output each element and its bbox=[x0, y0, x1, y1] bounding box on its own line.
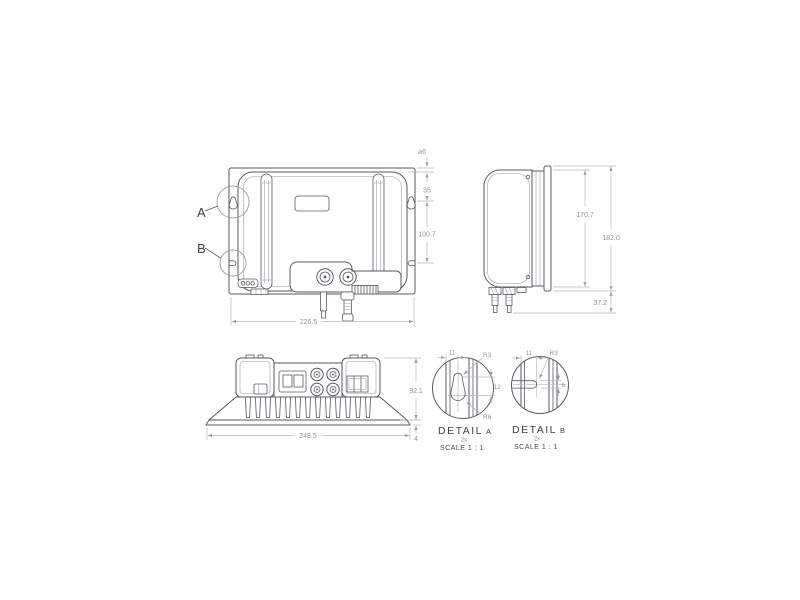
dim-hole-to-slot-label: 100.7 bbox=[418, 232, 436, 239]
bracket-edge bbox=[544, 166, 551, 291]
dim-length-label: 12 bbox=[494, 384, 502, 391]
detail-a-count: 2x bbox=[461, 438, 467, 444]
heatsink bbox=[206, 397, 410, 425]
dim-hole-label: ⌀6 bbox=[418, 149, 426, 156]
dim-edge-label: 11 bbox=[526, 350, 533, 357]
led-indicators bbox=[238, 279, 258, 288]
technical-drawing: A B 226.5 ⌀6 35 100.7 bbox=[0, 0, 800, 600]
detail-b-title: DETAIL bbox=[512, 424, 557, 436]
side-connectors bbox=[489, 288, 526, 313]
detail-a-boundary-circle bbox=[433, 358, 494, 419]
detail-a-suffix: A bbox=[486, 427, 491, 436]
dim-width-label: 226.5 bbox=[300, 319, 318, 326]
dim-r-large-label: R6 bbox=[483, 414, 492, 421]
detail-b-suffix: B bbox=[560, 426, 565, 435]
detail-a-content bbox=[446, 356, 477, 420]
detail-a-view: 11 R3 12 R6 DETAIL A 2x SCALE 1 : 1 bbox=[433, 350, 502, 453]
dim-depth-label: 92.1 bbox=[409, 388, 423, 395]
detail-b-content bbox=[512, 358, 566, 412]
dim-r-small-label: R3 bbox=[483, 352, 492, 359]
clip-band-left bbox=[261, 174, 272, 289]
cable-thin bbox=[321, 292, 327, 318]
dim-r-label: R3 bbox=[550, 350, 559, 357]
detail-b-boundary-circle bbox=[512, 357, 569, 414]
label-b-leader bbox=[205, 248, 221, 258]
dim-width-label: 248.5 bbox=[299, 433, 317, 440]
front-view: A B 226.5 ⌀6 35 100.7 bbox=[197, 149, 436, 326]
side-view: 170.7 182.0 37.2 bbox=[484, 166, 620, 313]
dim-body-height-label: 170.7 bbox=[576, 212, 594, 219]
dim-edge-label: 11 bbox=[449, 350, 456, 357]
enclosure-back-box bbox=[532, 171, 544, 286]
aux-connector bbox=[254, 384, 267, 394]
enclosure-shell-profile bbox=[484, 170, 532, 287]
terminal-block bbox=[347, 376, 368, 392]
dim-flange-label: 4 bbox=[414, 436, 418, 443]
terminal-comb bbox=[352, 286, 378, 295]
label-a-leader bbox=[205, 206, 218, 211]
technical-drawing-page: A B 226.5 ⌀6 35 100.7 bbox=[0, 0, 800, 600]
detail-b-scale: SCALE 1 : 1 bbox=[514, 444, 558, 451]
dim-top-to-hole-label: 35 bbox=[423, 188, 431, 195]
detail-b-view: 11 R3 6 DETAIL B 2x SCALE 1 : 1 bbox=[512, 350, 569, 451]
detail-a-label: A bbox=[197, 205, 206, 220]
heatsink-fins bbox=[245, 398, 370, 418]
dim-connector-label: 37.2 bbox=[593, 300, 607, 307]
dc-plug-connector bbox=[279, 371, 306, 392]
detail-a-scale: SCALE 1 : 1 bbox=[440, 445, 484, 452]
dim-total-height-label: 182.0 bbox=[602, 235, 620, 242]
bottom-view: 248.5 92.1 4 bbox=[206, 355, 423, 443]
detail-b-label: B bbox=[197, 241, 206, 256]
detail-a-title: DETAIL bbox=[438, 425, 483, 437]
cable-connector-thick bbox=[341, 292, 354, 321]
dim-height-label: 6 bbox=[562, 382, 566, 389]
detail-b-count: 2x bbox=[534, 437, 540, 443]
mounting-foot bbox=[251, 289, 268, 295]
